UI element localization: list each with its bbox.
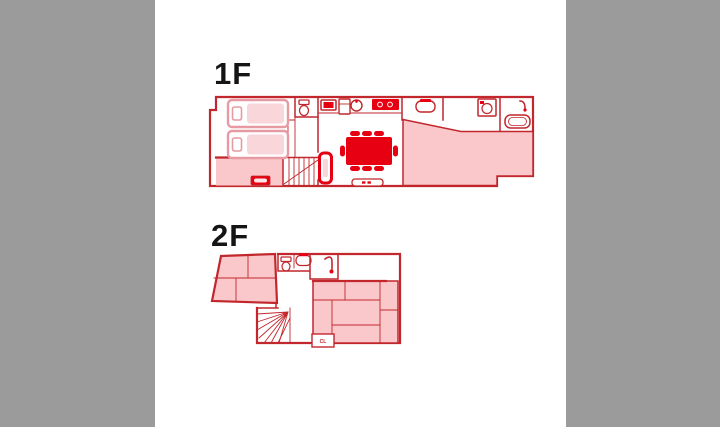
floor-2-label: 2F — [211, 220, 249, 251]
tv-console-icon — [352, 179, 383, 186]
toilet-icon — [299, 100, 309, 116]
toilet-icon — [281, 257, 291, 271]
kitchen-sink-icon — [351, 100, 362, 111]
tatami-room-small — [212, 254, 277, 303]
vanity-sink-icon — [416, 99, 435, 112]
floor-2f-plan: CL — [205, 248, 405, 353]
closet: CL — [312, 334, 334, 347]
dining-table — [340, 131, 398, 171]
tv-icon — [321, 100, 336, 110]
sofa-icon — [320, 153, 332, 183]
left-gray-bar — [0, 0, 155, 427]
vanity-sink-icon — [296, 254, 311, 266]
entry-cabinet-icon — [251, 176, 270, 185]
floor-1f-plan — [205, 92, 540, 192]
staircase-2f — [257, 308, 290, 343]
washing-machine-icon — [478, 99, 496, 116]
shower-icon — [325, 257, 334, 273]
bed-icon — [228, 131, 288, 158]
floor-1-label: 1F — [214, 58, 252, 89]
stove-icon — [372, 99, 399, 110]
refrigerator-icon — [339, 99, 350, 114]
entry-room — [216, 158, 283, 186]
closet-label: CL — [320, 339, 327, 345]
right-gray-bar — [566, 0, 720, 427]
floor-plan-page: 1F 2F — [0, 0, 720, 427]
bed-icon — [228, 100, 288, 127]
